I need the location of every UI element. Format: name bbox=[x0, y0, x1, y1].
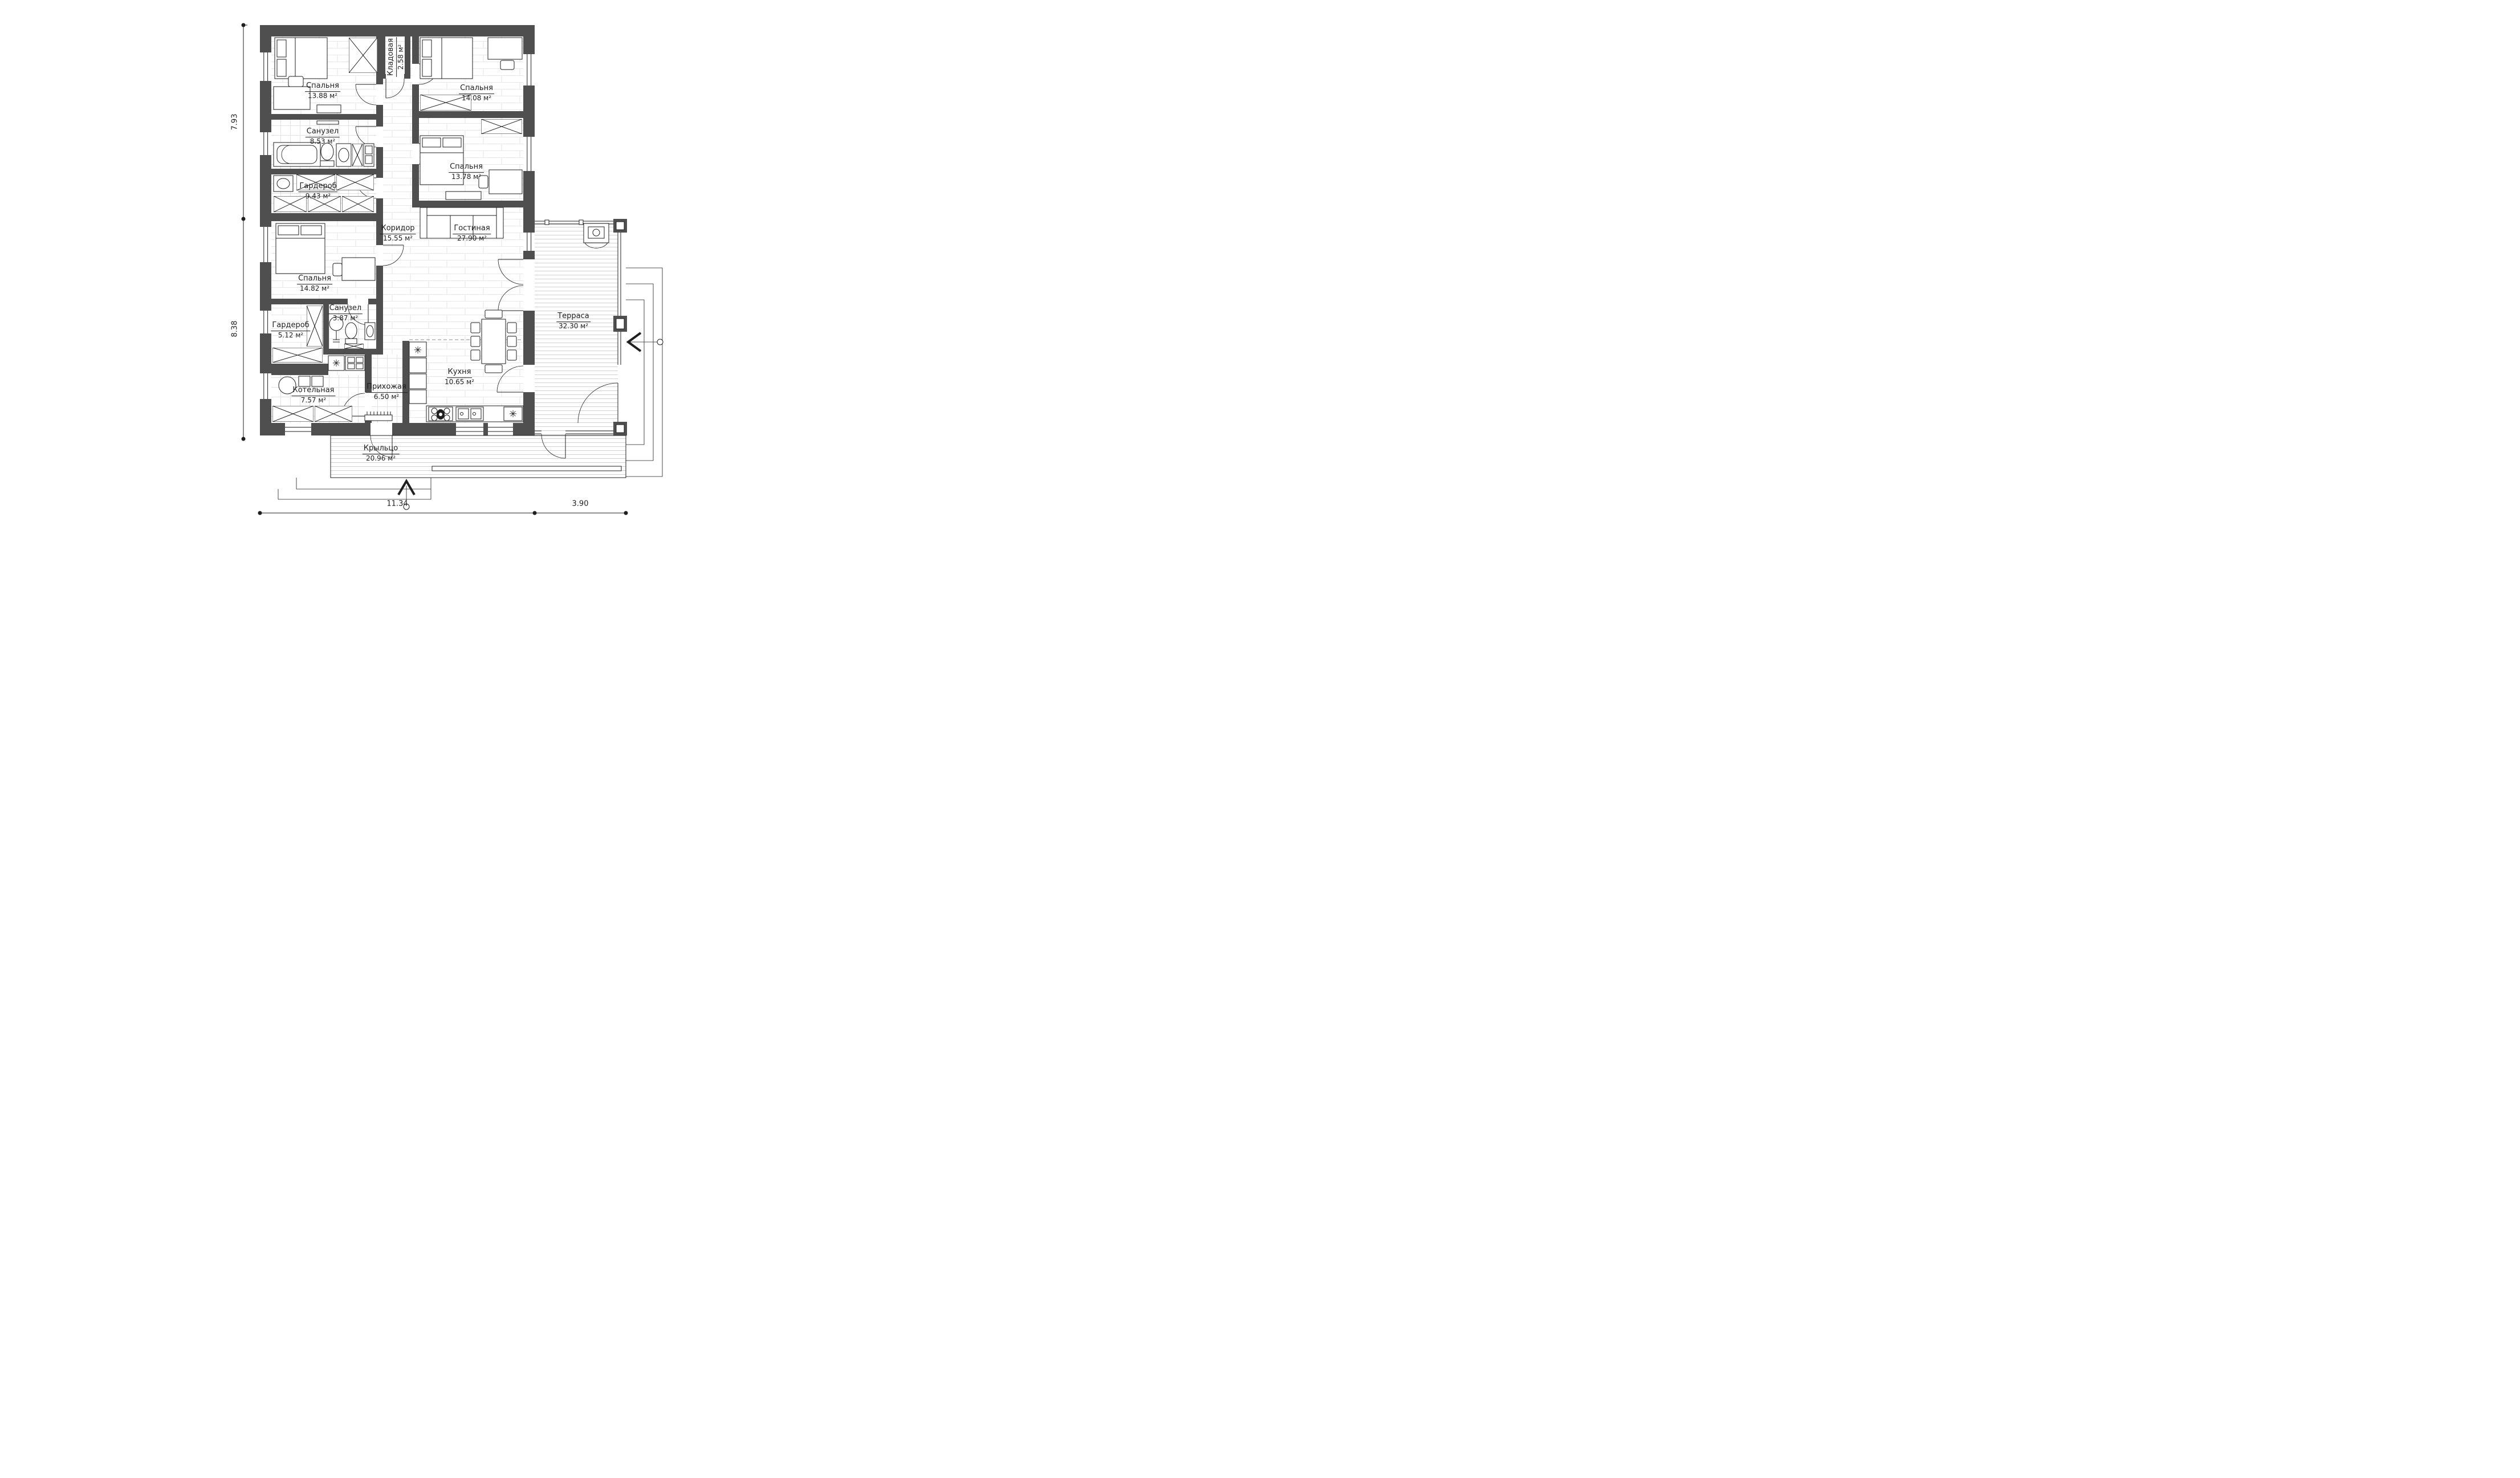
room-label-wardrobe-1: Гардероб 9.43 м² bbox=[298, 180, 337, 201]
room-label-boiler-room: Котельная 7.57 м² bbox=[291, 384, 335, 405]
room-label-bathroom-2: Санузел 3.87 м² bbox=[328, 302, 363, 323]
snowflake-icon: ✳ bbox=[509, 409, 517, 420]
room-label-living-room: Гостиная 27.90 м² bbox=[453, 222, 491, 243]
window-right-bedroom3 bbox=[523, 137, 535, 171]
room-label-porch: Крыльцо 20.96 м² bbox=[363, 442, 400, 463]
room-label-hallway: Прихожая 6.50 м² bbox=[365, 381, 408, 401]
dimension-left-bottom: 8.38 bbox=[231, 321, 239, 337]
room-label-bedroom-3: Спальня 13.78 м² bbox=[449, 161, 484, 181]
window-bottom-kitchen2 bbox=[488, 423, 513, 435]
dimension-bottom-right: 3.90 bbox=[572, 500, 589, 508]
window-right-living bbox=[523, 233, 535, 251]
floor-plan-page: ✳ ✳ ✳ bbox=[0, 0, 894, 524]
room-label-bathroom-1: Санузел 8.53 м² bbox=[306, 125, 340, 146]
room-label-corridor: Коридор 15.55 м² bbox=[380, 222, 416, 243]
room-label-bedroom-2: Спальня 14.08 м² bbox=[459, 82, 494, 103]
appliance-niche: ✳ bbox=[328, 356, 365, 370]
snowflake-icon: ✳ bbox=[332, 358, 340, 369]
window-bottom-kitchen1 bbox=[456, 423, 483, 435]
room-label-bedroom-4: Спальня 14.82 м² bbox=[297, 272, 332, 293]
window-left-bedroom1 bbox=[260, 52, 271, 81]
dimension-left-top: 7.93 bbox=[231, 114, 239, 131]
floor-plan-drawing: ✳ ✳ ✳ bbox=[0, 0, 894, 524]
room-label-wardrobe-2: Гардероб 5.12 м² bbox=[271, 319, 310, 340]
dimension-bottom-left: 11.34 bbox=[386, 500, 408, 508]
snowflake-icon: ✳ bbox=[414, 345, 422, 356]
terrace-steps bbox=[626, 268, 663, 477]
room-label-kitchen: Кухня 10.65 м² bbox=[445, 366, 474, 386]
room-label-storage: Кладовая 2.58 м² bbox=[385, 37, 405, 77]
room-label-terrace: Терраса 32.30 м² bbox=[556, 310, 591, 331]
window-right-bedroom2 bbox=[523, 54, 535, 85]
window-left-boiler bbox=[260, 373, 271, 399]
window-left-bathroom1 bbox=[260, 132, 271, 155]
window-left-wardrobe2 bbox=[260, 311, 271, 333]
window-left-bedroom4 bbox=[260, 227, 271, 262]
window-bottom-boiler bbox=[285, 423, 311, 435]
room-label-bedroom-1: Спальня 13.88 м² bbox=[305, 80, 340, 100]
